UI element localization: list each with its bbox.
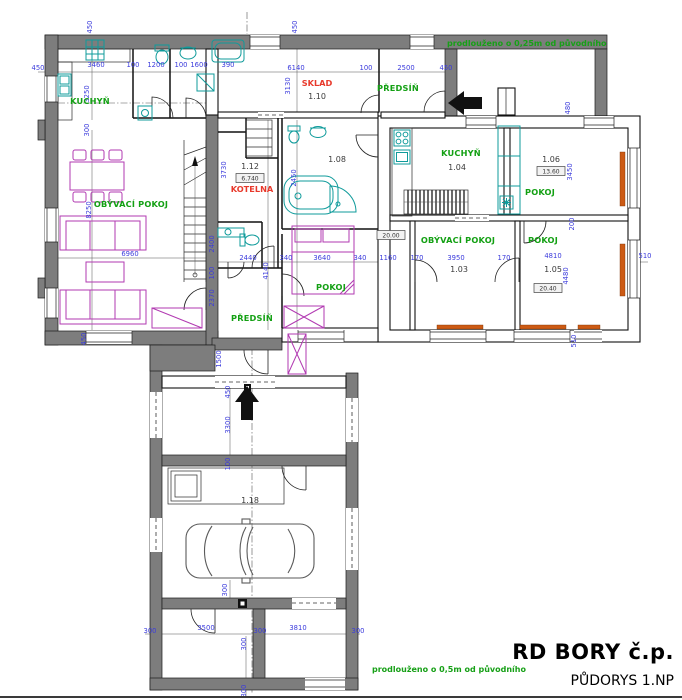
dimension-14: 3130 (284, 77, 292, 94)
area-value-3: 20.00 (382, 233, 399, 240)
dimension-46: 3500 (197, 624, 214, 632)
dimension-38: 4480 (562, 267, 570, 284)
room-number-1: 1.12 (241, 162, 259, 171)
dimension-36: 3450 (566, 163, 574, 180)
room-number-2: 1.08 (328, 155, 346, 164)
dimension-35: 510 (639, 252, 652, 260)
area-value-1: 13.60 (542, 169, 559, 176)
room-number-5: 1.03 (450, 265, 468, 274)
dimension-44: 300 (221, 584, 229, 597)
dining-table (70, 150, 124, 202)
dimension-30: 1160 (379, 254, 396, 262)
special-label-1: KOTELNA (231, 184, 274, 194)
special-label-0: SKLAD (302, 78, 333, 88)
project-title: RD BORY č.p. (512, 640, 674, 664)
area-value-2: 20.40 (539, 286, 556, 293)
wc-toilet-icon (240, 234, 259, 246)
room-label-3: PŘEDSÍŇ (231, 312, 273, 323)
dimension-19: 3730 (220, 161, 228, 178)
dimension-41: 450 (224, 386, 232, 399)
room-label-2: PŘEDSÍŇ (377, 82, 419, 93)
dimension-1: 3460 (87, 61, 104, 69)
dimension-39: 510 (570, 335, 578, 348)
dimension-32: 3950 (447, 254, 464, 262)
dimension-17: 6960 (121, 250, 138, 258)
dimension-3: 1200 (147, 61, 164, 69)
room-number-3: 1.04 (448, 163, 466, 172)
dimension-26: 2440 (239, 254, 256, 262)
dimension-15: 300 (83, 124, 91, 137)
dimension-31: 170 (411, 254, 424, 262)
dimension-43: 100 (224, 458, 232, 471)
dimension-2: 100 (127, 61, 140, 69)
dimension-37: 200 (568, 218, 576, 231)
dimension-47: 300 (254, 627, 267, 635)
wardrobe (284, 306, 324, 328)
note-0: prodlouženo o 0,25m od původního (447, 38, 607, 48)
dimension-23: 2370 (208, 289, 216, 306)
room-label-5: KUCHYŇ (441, 147, 481, 158)
dimension-29: 340 (354, 254, 367, 262)
dimension-34: 4810 (544, 252, 561, 260)
area-value-0: 6.740 (241, 176, 258, 183)
room-label-4: POKOJ (316, 282, 346, 292)
dimension-20: 2450 (290, 169, 298, 186)
dimension-0: 450 (32, 64, 45, 72)
dimension-16: 8250 (85, 201, 93, 218)
tv-bench (152, 308, 202, 328)
dimension-6: 390 (222, 61, 235, 69)
dimension-42: 3300 (224, 416, 232, 433)
dimension-10: 450 (440, 64, 453, 72)
washbasin-icon (310, 127, 326, 138)
sofa (60, 216, 146, 250)
toilet-icon (288, 126, 300, 143)
dimension-40: 480 (564, 102, 572, 115)
dimension-50: 300 (240, 638, 248, 651)
room-number-0: 1.10 (308, 92, 326, 101)
dimension-24: 1500 (215, 350, 223, 367)
sofa (60, 290, 146, 324)
car (186, 519, 314, 583)
kitchen-sink-icon (58, 74, 71, 96)
dimension-28: 3640 (313, 254, 330, 262)
dimension-5: 1600 (190, 61, 207, 69)
dimension-27: 340 (280, 254, 293, 262)
dimension-33: 170 (498, 254, 511, 262)
floorplan-canvas: 4503460100120010016003906140100250045045… (0, 0, 682, 700)
stairs-main (184, 140, 206, 282)
drawing-title: PŮDORYS 1.NP (512, 673, 674, 689)
entry-arrow-icon (235, 386, 259, 420)
dimension-45: 300 (144, 627, 157, 635)
dimension-18: 450 (80, 333, 88, 346)
dimension-49: 300 (352, 627, 365, 635)
dimension-22: 100 (208, 267, 216, 280)
dimension-25: 4140 (262, 262, 270, 279)
workbench (168, 468, 284, 504)
floorplan-page: 4503460100120010016003906140100250045045… (0, 0, 682, 700)
room-label-6: POKOJ (525, 187, 555, 197)
dimension-12: 450 (291, 21, 299, 34)
dimension-21: 2400 (208, 235, 216, 252)
note-1: prodlouženo o 0,5m od původního (372, 664, 526, 674)
room-number-4: 1.06 (542, 155, 560, 164)
dimension-8: 100 (360, 64, 373, 72)
dimension-4: 100 (175, 61, 188, 69)
title-block: RD BORY č.p. PŮDORYS 1.NP (512, 640, 674, 689)
room-number-6: 1.05 (544, 265, 562, 274)
room-label-7: OBÝVACÍ POKOJ (421, 234, 495, 245)
dimension-11: 450 (86, 21, 94, 34)
coffee-table (86, 262, 124, 282)
room-label-1: OBÝVACÍ POKOJ (94, 198, 168, 209)
room-number-7: 1.18 (241, 496, 259, 505)
sheet-border (0, 696, 682, 698)
dimension-7: 6140 (287, 64, 304, 72)
dimension-48: 3810 (289, 624, 306, 632)
room-label-0: KUCHYŇ (70, 95, 110, 106)
room-label-8: POKOJ (528, 235, 558, 245)
dimension-9: 2500 (397, 64, 414, 72)
shower-corner-icon (330, 186, 356, 212)
